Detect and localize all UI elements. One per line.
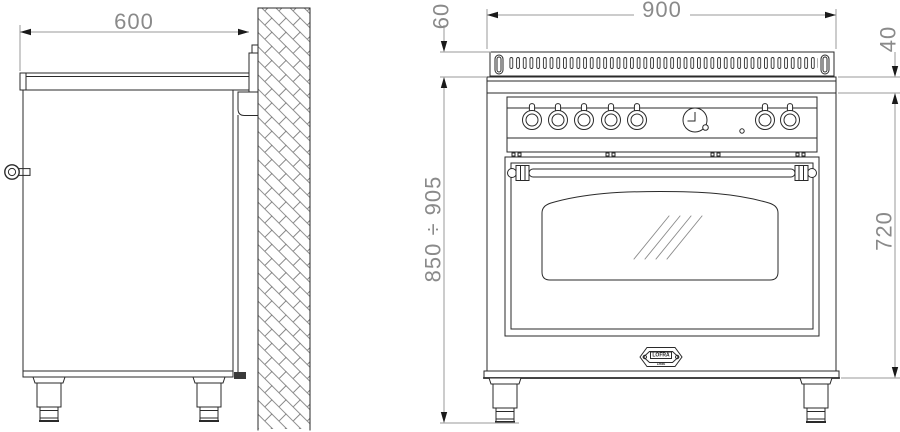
door-window xyxy=(542,192,778,281)
wall-section xyxy=(258,8,310,430)
dim-front-width-label: 900 xyxy=(642,0,682,22)
door-hinge-gap xyxy=(512,153,805,156)
vent-slots xyxy=(508,57,818,69)
side-view xyxy=(5,8,310,430)
worktop-side-profile xyxy=(20,73,249,90)
worktop-front-trim xyxy=(487,77,836,93)
arrow xyxy=(892,367,898,378)
plinth-strip xyxy=(484,371,839,378)
arrow xyxy=(892,93,898,104)
backguard-side-profile xyxy=(249,45,258,92)
dim-side-depth-label: 600 xyxy=(114,9,154,34)
arrow xyxy=(825,12,836,18)
brand-badge: LOFRA 1956 xyxy=(640,348,682,367)
front-left-leg xyxy=(489,378,521,422)
technical-drawing-canvas: LOFRA 1956 xyxy=(0,0,900,432)
arrow xyxy=(892,66,898,77)
oven-door-knob-side xyxy=(5,165,30,179)
dim-body-front-height-label: 720 xyxy=(872,211,897,251)
backguard-vent-strip xyxy=(490,52,834,76)
cabinet-side-profile xyxy=(23,90,258,379)
dim-top-trim-height-label: 40 xyxy=(876,26,900,52)
rear-spacer-block xyxy=(234,372,246,379)
arrow xyxy=(487,12,498,18)
wall-bracket xyxy=(238,92,258,116)
badge-brand-text: LOFRA xyxy=(652,352,670,358)
front-view: LOFRA 1956 xyxy=(484,52,839,422)
arrow xyxy=(441,77,447,88)
oven-door xyxy=(505,157,819,336)
side-front-leg xyxy=(33,377,65,421)
arrow xyxy=(441,412,447,423)
arrow xyxy=(20,29,31,35)
dim-backguard-height-label: 60 xyxy=(429,3,454,29)
kick-panel: LOFRA 1956 xyxy=(640,348,682,367)
front-right-leg xyxy=(800,378,832,422)
technical-drawing: LOFRA 1956 xyxy=(0,0,900,432)
arrow xyxy=(238,29,249,35)
dim-floor-to-worktop-label: 850 ÷ 905 xyxy=(421,176,446,283)
side-rear-leg xyxy=(193,377,225,421)
arrow xyxy=(441,41,447,52)
badge-year-text: 1956 xyxy=(657,362,665,366)
